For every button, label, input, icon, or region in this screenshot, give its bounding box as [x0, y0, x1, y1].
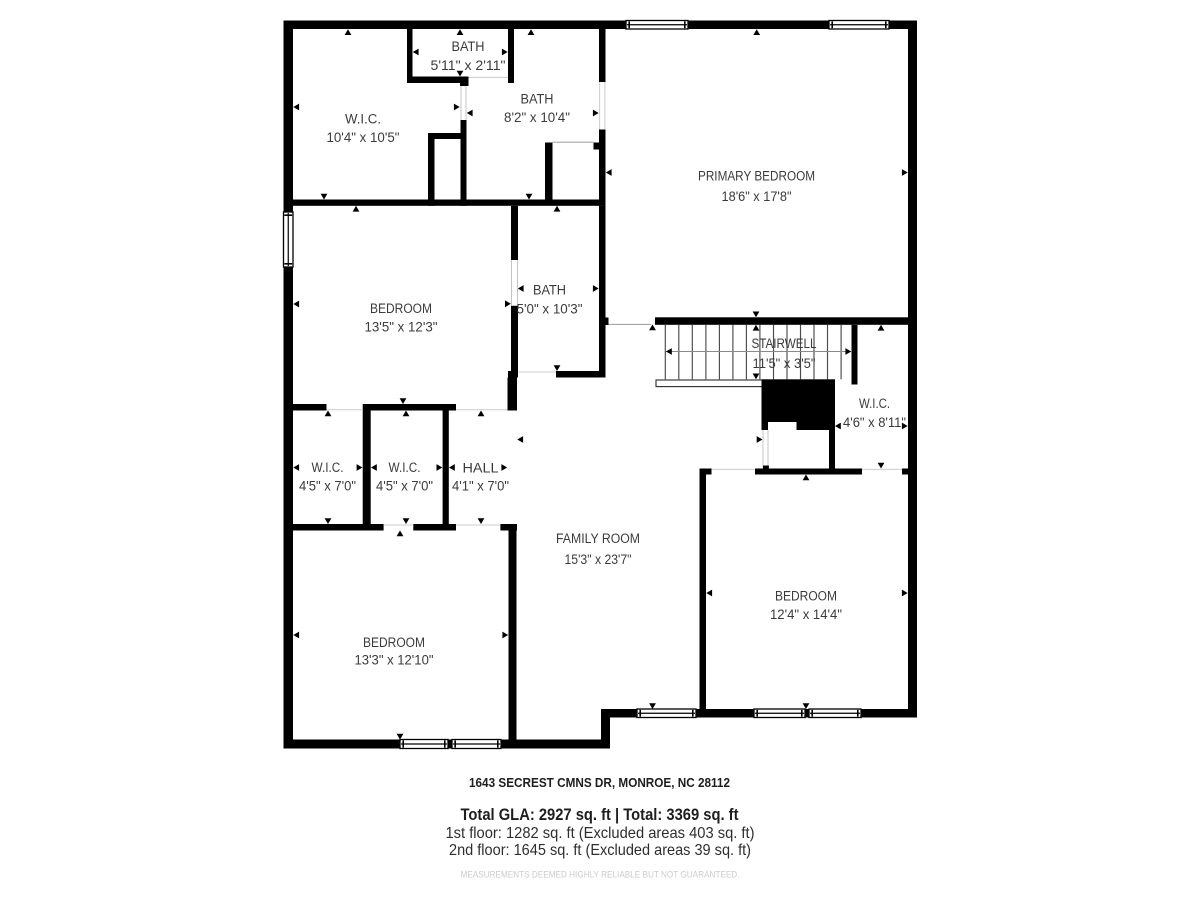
svg-text:BATH: BATH — [521, 92, 554, 108]
svg-text:12'4" x 14'4": 12'4" x 14'4" — [770, 607, 842, 623]
svg-text:MEASUREMENTS DEEMED HIGHLY REL: MEASUREMENTS DEEMED HIGHLY RELIABLE BUT … — [461, 870, 740, 880]
svg-text:W.I.C.: W.I.C. — [312, 460, 344, 476]
svg-text:W.I.C.: W.I.C. — [345, 112, 381, 128]
svg-text:BEDROOM: BEDROOM — [370, 301, 432, 317]
svg-text:BEDROOM: BEDROOM — [775, 589, 837, 605]
svg-text:HALL: HALL — [463, 461, 499, 477]
svg-text:4'5" x 7'0": 4'5" x 7'0" — [299, 479, 356, 495]
svg-text:1st floor: 1282 sq. ft (Exclud: 1st floor: 1282 sq. ft (Excluded areas 4… — [446, 825, 755, 842]
svg-text:4'5" x 7'0": 4'5" x 7'0" — [376, 479, 433, 495]
svg-text:4'1" x 7'0": 4'1" x 7'0" — [452, 479, 509, 495]
svg-text:Total GLA: 2927 sq. ft | Total: Total GLA: 2927 sq. ft | Total: 3369 sq.… — [461, 806, 740, 824]
svg-text:STAIRWELL: STAIRWELL — [752, 336, 817, 352]
svg-text:BATH: BATH — [452, 39, 485, 55]
svg-text:PRIMARY BEDROOM: PRIMARY BEDROOM — [698, 169, 815, 185]
svg-text:15'3" x 23'7": 15'3" x 23'7" — [565, 552, 632, 568]
svg-text:W.I.C.: W.I.C. — [859, 396, 890, 412]
svg-text:BATH: BATH — [533, 283, 566, 299]
svg-text:5'0" x 10'3": 5'0" x 10'3" — [517, 302, 583, 318]
svg-text:5'11" x 2'11": 5'11" x 2'11" — [431, 58, 506, 74]
svg-text:2nd floor: 1645 sq. ft (Exclud: 2nd floor: 1645 sq. ft (Excluded areas 3… — [449, 842, 751, 859]
svg-text:11'5" x 3'5": 11'5" x 3'5" — [753, 356, 816, 372]
svg-text:10'4" x 10'5": 10'4" x 10'5" — [327, 130, 400, 146]
svg-text:18'6" x 17'8": 18'6" x 17'8" — [722, 189, 792, 205]
svg-text:8'2" x 10'4": 8'2" x 10'4" — [504, 110, 570, 126]
svg-text:BEDROOM: BEDROOM — [363, 635, 425, 651]
svg-text:FAMILY ROOM: FAMILY ROOM — [556, 531, 640, 547]
svg-text:W.I.C.: W.I.C. — [389, 460, 421, 476]
svg-text:4'6" x 8'11": 4'6" x 8'11" — [843, 415, 906, 431]
svg-text:13'5" x 12'3": 13'5" x 12'3" — [365, 320, 438, 336]
svg-text:1643 SECREST CMNS DR, MONROE,: 1643 SECREST CMNS DR, MONROE, NC 28112 — [469, 776, 730, 790]
svg-text:13'3" x 12'10": 13'3" x 12'10" — [355, 653, 434, 669]
